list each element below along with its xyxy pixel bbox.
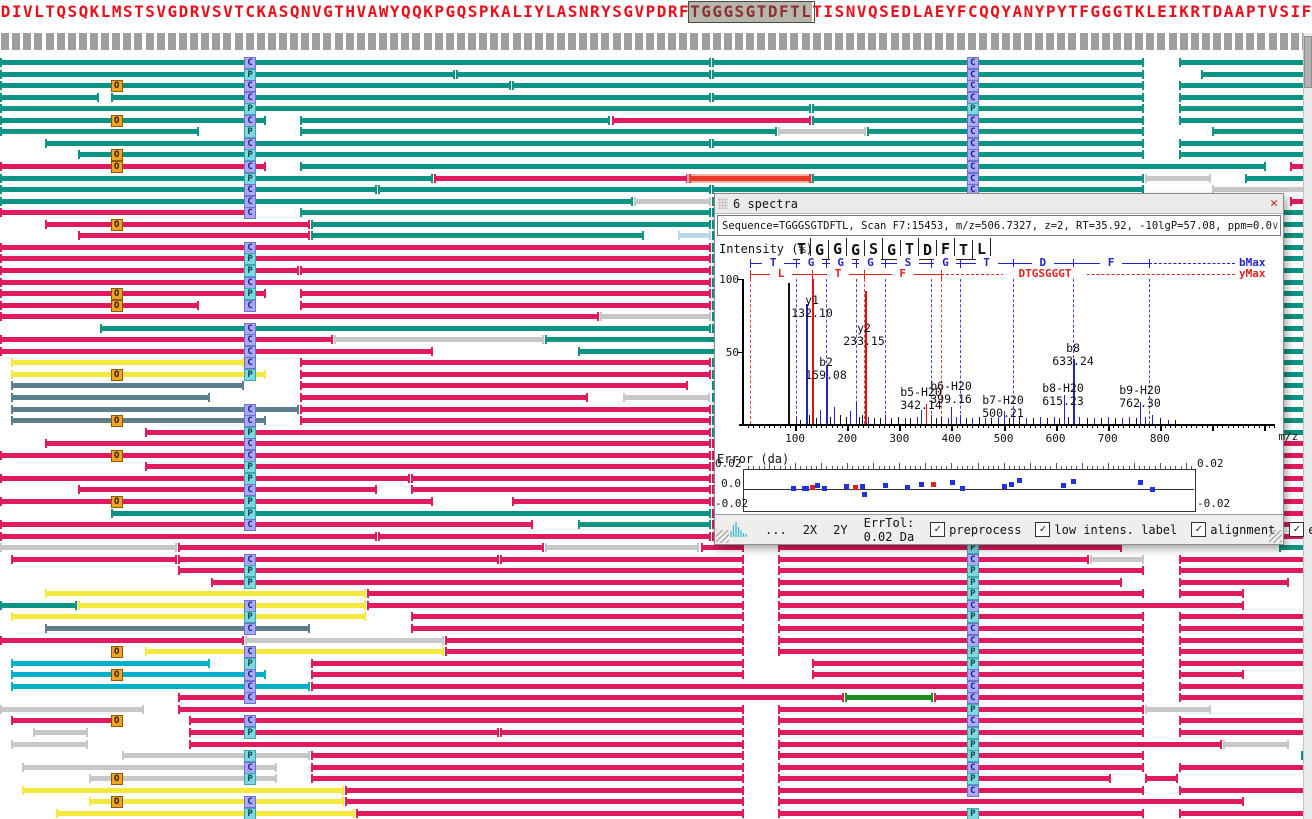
modification-badge[interactable]: P: [967, 658, 979, 670]
peptide-bar[interactable]: [0, 280, 711, 285]
peptide-bar[interactable]: [0, 349, 433, 354]
peptide-bar[interactable]: [0, 638, 244, 643]
peptide-bar[interactable]: [78, 233, 311, 238]
peptide-bar[interactable]: [11, 383, 244, 388]
peptide-bar[interactable]: [11, 372, 266, 377]
peptide-bar[interactable]: [300, 407, 710, 412]
peptide-bar[interactable]: [778, 638, 1144, 643]
peptide-bar[interactable]: [1179, 580, 1289, 585]
peptide-bar[interactable]: [845, 695, 933, 700]
modification-badge[interactable]: P: [244, 103, 256, 115]
modification-badge[interactable]: P: [244, 126, 256, 138]
peptide-bar[interactable]: [0, 60, 711, 65]
modification-badge[interactable]: C: [244, 346, 256, 358]
peptide-bar[interactable]: [778, 742, 1222, 747]
peptide-bar[interactable]: [189, 730, 499, 735]
modification-badge[interactable]: C: [244, 415, 256, 427]
peptide-bar[interactable]: [712, 95, 1145, 100]
peptide-bar[interactable]: [300, 372, 710, 377]
peptide-bar[interactable]: [11, 395, 210, 400]
modification-badge[interactable]: P: [967, 704, 979, 716]
peptide-bar[interactable]: [778, 557, 1088, 562]
peptide-bar[interactable]: [411, 614, 744, 619]
modification-badge[interactable]: C: [967, 138, 979, 150]
peptide-bar[interactable]: [300, 210, 710, 215]
modification-badge[interactable]: C: [967, 600, 979, 612]
drag-grip-icon[interactable]: [718, 198, 728, 209]
peptide-bar[interactable]: [1179, 568, 1311, 573]
peptide-bar[interactable]: [100, 326, 711, 331]
peptide-bar[interactable]: [1090, 557, 1145, 562]
modification-badge[interactable]: P: [967, 611, 979, 623]
modification-badge[interactable]: C: [244, 669, 256, 681]
peptide-bar[interactable]: [778, 753, 1144, 758]
modification-badge[interactable]: O: [111, 80, 123, 92]
modification-badge[interactable]: C: [244, 715, 256, 727]
peptide-bar[interactable]: [689, 176, 810, 181]
peptide-bar[interactable]: [1245, 176, 1311, 181]
peptide-bar[interactable]: [0, 199, 633, 204]
modification-badge[interactable]: C: [244, 438, 256, 450]
peptide-bar[interactable]: [634, 199, 711, 204]
peptide-bar[interactable]: [0, 176, 433, 181]
peptide-bar[interactable]: [334, 337, 544, 342]
peptide-bar[interactable]: [0, 303, 199, 308]
modification-badge[interactable]: C: [967, 69, 979, 81]
modification-badge[interactable]: P: [244, 427, 256, 439]
peptide-bar[interactable]: [78, 487, 377, 492]
peptide-bar[interactable]: [33, 730, 88, 735]
modification-badge[interactable]: O: [111, 715, 123, 727]
peptide-bar[interactable]: [245, 638, 444, 643]
peptide-bar[interactable]: [178, 557, 499, 562]
modification-badge[interactable]: P: [244, 69, 256, 81]
peptide-bar[interactable]: [211, 580, 744, 585]
peptide-bar[interactable]: [345, 788, 744, 793]
peptide-bar[interactable]: [11, 360, 244, 365]
peptide-bar[interactable]: [1145, 707, 1211, 712]
peptide-bar[interactable]: [500, 557, 744, 562]
peptide-bar[interactable]: [300, 418, 710, 423]
modification-badge[interactable]: C: [244, 357, 256, 369]
peptide-bar[interactable]: [0, 72, 455, 77]
modification-badge[interactable]: O: [111, 115, 123, 127]
modification-badge[interactable]: C: [244, 57, 256, 69]
close-icon[interactable]: ✕: [1270, 196, 1278, 211]
peptide-bar[interactable]: [545, 545, 700, 550]
peptide-bar[interactable]: [0, 603, 77, 608]
peptide-bar[interactable]: [778, 580, 1122, 585]
peptide-bar[interactable]: [78, 603, 366, 608]
peptide-bar[interactable]: [0, 707, 144, 712]
peptide-bar[interactable]: [356, 811, 744, 816]
zoom-y-button[interactable]: 2Y: [833, 523, 847, 537]
peptide-bar[interactable]: [778, 776, 1111, 781]
peptide-bar[interactable]: [1179, 718, 1311, 723]
modification-badge[interactable]: C: [244, 92, 256, 104]
peptide-bar[interactable]: [178, 545, 544, 550]
peptide-bar[interactable]: [11, 557, 177, 562]
peptide-bar[interactable]: [778, 707, 1144, 712]
modification-badge[interactable]: P: [244, 461, 256, 473]
modification-badge[interactable]: C: [244, 450, 256, 462]
checkbox-icon[interactable]: ✓: [1289, 522, 1304, 537]
modification-badge[interactable]: O: [111, 161, 123, 173]
peptide-bar[interactable]: [778, 788, 1144, 793]
peptide-bar[interactable]: [11, 742, 88, 747]
peptide-bar[interactable]: [45, 222, 311, 227]
modification-badge[interactable]: C: [244, 80, 256, 92]
peptide-bar[interactable]: [300, 303, 710, 308]
peptide-bar[interactable]: [1145, 176, 1211, 181]
modification-badge[interactable]: P: [244, 750, 256, 762]
scrollbar-thumb[interactable]: [1304, 36, 1312, 88]
peptide-bar[interactable]: [22, 788, 343, 793]
zoom-x-button[interactable]: 2X: [803, 523, 817, 537]
modification-badge[interactable]: C: [967, 149, 979, 161]
modification-badge[interactable]: C: [967, 715, 979, 727]
modification-badge[interactable]: P: [967, 739, 979, 751]
peptide-bar[interactable]: [778, 545, 1122, 550]
modification-badge[interactable]: O: [111, 369, 123, 381]
modification-badge[interactable]: C: [967, 554, 979, 566]
peptide-bar[interactable]: [678, 233, 710, 238]
peptide-bar[interactable]: [411, 626, 744, 631]
peptide-bar[interactable]: [300, 164, 1266, 169]
peptide-bar[interactable]: [0, 337, 333, 342]
peptide-bar[interactable]: [11, 672, 266, 677]
modification-badge[interactable]: C: [244, 600, 256, 612]
resize-grip-icon[interactable]: [716, 530, 729, 543]
modification-badge[interactable]: C: [244, 184, 256, 196]
peptide-bar[interactable]: [11, 684, 310, 689]
modification-badge[interactable]: P: [967, 646, 979, 658]
peptide-bar[interactable]: [778, 614, 1144, 619]
peptide-bar[interactable]: [300, 360, 710, 365]
peptide-bar[interactable]: [600, 314, 710, 319]
peptide-bar[interactable]: [1212, 187, 1311, 192]
toolbar-checkbox-alignment[interactable]: ✓alignment: [1191, 522, 1275, 537]
modification-badge[interactable]: P: [967, 103, 979, 115]
modification-badge[interactable]: C: [244, 115, 256, 127]
peptide-bar[interactable]: [1179, 141, 1311, 146]
peptide-bar[interactable]: [367, 591, 744, 596]
peptide-bar[interactable]: [867, 129, 1144, 134]
modification-badge[interactable]: C: [244, 242, 256, 254]
modification-badge[interactable]: P: [244, 773, 256, 785]
modification-badge[interactable]: P: [244, 658, 256, 670]
peptide-bar[interactable]: [1179, 661, 1311, 666]
peptide-bar[interactable]: [578, 522, 710, 527]
peptide-bar[interactable]: [1179, 557, 1311, 562]
peptide-bar[interactable]: [189, 742, 744, 747]
peptide-bar[interactable]: [712, 72, 1145, 77]
peptide-bar[interactable]: [300, 383, 688, 388]
peptide-bar[interactable]: [1179, 638, 1311, 643]
peptide-bar[interactable]: [0, 187, 377, 192]
peptide-bar[interactable]: [45, 441, 711, 446]
modification-badge[interactable]: C: [244, 300, 256, 312]
peptide-bar[interactable]: [0, 164, 266, 169]
modification-badge[interactable]: P: [244, 149, 256, 161]
modification-badge[interactable]: O: [111, 288, 123, 300]
peptide-bar[interactable]: [178, 568, 744, 573]
modification-badge[interactable]: C: [967, 57, 979, 69]
peptide-bar[interactable]: [311, 753, 744, 758]
peptide-bar[interactable]: [11, 418, 266, 423]
modification-badge[interactable]: C: [244, 207, 256, 219]
peptide-bar[interactable]: [311, 222, 710, 227]
modification-badge[interactable]: C: [967, 692, 979, 704]
peptide-bar[interactable]: [378, 534, 711, 539]
peptide-bar[interactable]: [512, 83, 1145, 88]
modification-badge[interactable]: O: [111, 149, 123, 161]
peptide-bar[interactable]: [178, 707, 744, 712]
modification-badge[interactable]: C: [244, 277, 256, 289]
peptide-bar[interactable]: [623, 395, 711, 400]
toolbar-checkbox-preprocess[interactable]: ✓preprocess: [930, 522, 1021, 537]
modification-badge[interactable]: C: [967, 681, 979, 693]
peptide-bar[interactable]: [1179, 672, 1245, 677]
peptide-bar[interactable]: [111, 511, 710, 516]
peptide-bar[interactable]: [456, 72, 711, 77]
modification-badge[interactable]: C: [244, 762, 256, 774]
modification-badge[interactable]: C: [967, 623, 979, 635]
modification-badge[interactable]: P: [244, 265, 256, 277]
modification-badge[interactable]: P: [244, 369, 256, 381]
peptide-bar[interactable]: [778, 626, 1144, 631]
popup-title-bar[interactable]: 6 spectra ✕: [715, 194, 1283, 214]
peptide-bar[interactable]: [778, 603, 1244, 608]
toolbar-checkbox-error[interactable]: ✓error: [1289, 522, 1312, 537]
peptide-bar[interactable]: [367, 603, 744, 608]
peptide-bar[interactable]: [122, 753, 310, 758]
peptide-bar[interactable]: [1179, 788, 1311, 793]
peptide-bar[interactable]: [778, 568, 1144, 573]
peptide-bar[interactable]: [345, 799, 744, 804]
modification-badge[interactable]: P: [967, 750, 979, 762]
peptide-bar[interactable]: [411, 487, 710, 492]
peptide-bar[interactable]: [45, 626, 311, 631]
peptide-bar[interactable]: [300, 118, 610, 123]
peptide-bar[interactable]: [0, 106, 811, 111]
peptide-bar[interactable]: [311, 661, 744, 666]
peptide-bar[interactable]: [22, 765, 277, 770]
modification-badge[interactable]: C: [244, 692, 256, 704]
modification-badge[interactable]: C: [967, 762, 979, 774]
peptide-bar[interactable]: [778, 811, 1144, 816]
peptide-bar[interactable]: [11, 661, 210, 666]
modification-badge[interactable]: C: [967, 126, 979, 138]
peptide-bar[interactable]: [300, 268, 710, 273]
peptide-bar[interactable]: [612, 118, 811, 123]
peptide-bar[interactable]: [1212, 129, 1311, 134]
modification-badge[interactable]: C: [967, 173, 979, 185]
peptide-bar[interactable]: [311, 776, 744, 781]
modification-badge[interactable]: P: [244, 577, 256, 589]
modification-badge[interactable]: P: [967, 588, 979, 600]
peptide-bar[interactable]: [78, 152, 1144, 157]
peptide-bar[interactable]: [1179, 591, 1245, 596]
peptide-bar[interactable]: [0, 476, 410, 481]
checkbox-icon[interactable]: ✓: [1035, 522, 1050, 537]
peptide-bar[interactable]: [778, 718, 1144, 723]
modification-badge[interactable]: P: [244, 173, 256, 185]
modification-badge[interactable]: P: [967, 577, 979, 589]
peptide-bar[interactable]: [0, 499, 433, 504]
modification-badge[interactable]: O: [111, 646, 123, 658]
peptide-bar[interactable]: [311, 233, 644, 238]
peptide-bar[interactable]: [778, 591, 1144, 596]
spectrum-view-icon[interactable]: [729, 521, 749, 538]
peptide-bar[interactable]: [56, 811, 355, 816]
peptide-bar[interactable]: [0, 118, 266, 123]
modification-badge[interactable]: C: [967, 115, 979, 127]
peptide-bar[interactable]: [89, 799, 344, 804]
modification-badge[interactable]: C: [244, 681, 256, 693]
modification-badge[interactable]: P: [244, 253, 256, 265]
more-options-button[interactable]: ...: [765, 523, 787, 537]
modification-badge[interactable]: P: [244, 611, 256, 623]
peptide-bar[interactable]: [701, 545, 745, 550]
modification-badge[interactable]: P: [244, 508, 256, 520]
peptide-bar[interactable]: [934, 695, 1144, 700]
modification-badge[interactable]: P: [244, 565, 256, 577]
modification-badge[interactable]: C: [967, 785, 979, 797]
modification-badge[interactable]: O: [111, 300, 123, 312]
modification-badge[interactable]: P: [244, 808, 256, 819]
modification-badge[interactable]: C: [244, 404, 256, 416]
modification-badge[interactable]: O: [111, 496, 123, 508]
peptide-bar[interactable]: [178, 695, 844, 700]
peptide-bar[interactable]: [712, 141, 1145, 146]
modification-badge[interactable]: P: [967, 727, 979, 739]
modification-badge[interactable]: P: [244, 727, 256, 739]
modification-badge[interactable]: O: [111, 415, 123, 427]
peptide-bar[interactable]: [11, 718, 121, 723]
peptide-bar[interactable]: [145, 649, 444, 654]
peptide-bar[interactable]: [434, 176, 689, 181]
peptide-bar[interactable]: [0, 522, 533, 527]
peptide-bar[interactable]: [1201, 72, 1311, 77]
peptide-bar[interactable]: [0, 314, 599, 319]
peptide-bar[interactable]: [778, 730, 1144, 735]
peptide-bar[interactable]: [1179, 811, 1311, 816]
peptide-bar[interactable]: [778, 799, 1244, 804]
peptide-bar[interactable]: [1145, 776, 1177, 781]
peptide-bar[interactable]: [445, 649, 744, 654]
modification-badge[interactable]: C: [967, 669, 979, 681]
peptide-bar[interactable]: [1179, 152, 1311, 157]
peptide-bar[interactable]: [0, 210, 255, 215]
modification-badge[interactable]: O: [111, 219, 123, 231]
peptide-bar[interactable]: [1179, 106, 1311, 111]
modification-badge[interactable]: P: [967, 773, 979, 785]
peptide-bar[interactable]: [145, 430, 711, 435]
peptide-bar[interactable]: [1179, 60, 1311, 65]
peptide-bar[interactable]: [311, 672, 744, 677]
peptide-bar[interactable]: [45, 591, 366, 596]
modification-badge[interactable]: O: [111, 773, 123, 785]
modification-badge[interactable]: C: [244, 138, 256, 150]
modification-badge[interactable]: O: [111, 450, 123, 462]
peptide-bar[interactable]: [1179, 118, 1311, 123]
modification-badge[interactable]: C: [967, 635, 979, 647]
peptide-bar[interactable]: [189, 718, 744, 723]
modification-badge[interactable]: P: [967, 565, 979, 577]
peptide-bar[interactable]: [45, 141, 711, 146]
modification-badge[interactable]: P: [967, 808, 979, 819]
checkbox-icon[interactable]: ✓: [1191, 522, 1206, 537]
peptide-bar[interactable]: [1179, 695, 1311, 700]
resize-grip-icon[interactable]: [1269, 530, 1282, 543]
peptide-bar[interactable]: [300, 395, 588, 400]
spectrum-selector-dropdown[interactable]: Sequence=TGGGSGTDFTL, Scan F7:15453, m/z…: [717, 215, 1281, 236]
peptide-bar[interactable]: [111, 95, 710, 100]
peptide-bar[interactable]: [0, 245, 711, 250]
modification-badge[interactable]: C: [244, 161, 256, 173]
modification-badge[interactable]: C: [244, 554, 256, 566]
peptide-bar[interactable]: [411, 476, 710, 481]
peptide-bar[interactable]: [1179, 730, 1311, 735]
modification-badge[interactable]: P: [244, 288, 256, 300]
modification-badge[interactable]: C: [244, 323, 256, 335]
modification-badge[interactable]: C: [244, 334, 256, 346]
modification-badge[interactable]: O: [111, 669, 123, 681]
peptide-bar[interactable]: [1179, 684, 1311, 689]
peptide-bar[interactable]: [311, 684, 1144, 689]
peptide-bar[interactable]: [1179, 83, 1311, 88]
modification-badge[interactable]: C: [244, 484, 256, 496]
peptide-bar[interactable]: [512, 499, 711, 504]
peptide-bar[interactable]: [0, 545, 177, 550]
modification-badge[interactable]: C: [244, 519, 256, 531]
peptide-bar[interactable]: [1179, 626, 1311, 631]
peptide-bar[interactable]: [712, 60, 1145, 65]
peptide-bar[interactable]: [1223, 742, 1289, 747]
peptide-bar[interactable]: [300, 291, 710, 296]
peptide-bar[interactable]: [145, 464, 711, 469]
peptide-bar[interactable]: [11, 614, 366, 619]
peptide-bar[interactable]: [300, 129, 777, 134]
peptide-bar[interactable]: [0, 256, 711, 261]
peptide-bar[interactable]: [778, 129, 866, 134]
peptide-bar[interactable]: [500, 730, 744, 735]
vertical-scrollbar[interactable]: [1303, 33, 1312, 819]
toolbar-checkbox-low-intens-label[interactable]: ✓low intens. label: [1035, 522, 1177, 537]
peptide-bar[interactable]: [1179, 95, 1311, 100]
modification-badge[interactable]: P: [244, 496, 256, 508]
peptide-bar[interactable]: [712, 187, 1145, 192]
modification-badge[interactable]: C: [244, 623, 256, 635]
modification-badge[interactable]: C: [967, 80, 979, 92]
modification-badge[interactable]: C: [967, 161, 979, 173]
peptide-bar[interactable]: [378, 187, 711, 192]
modification-badge[interactable]: C: [244, 646, 256, 658]
peptide-bar[interactable]: [0, 453, 711, 458]
modification-badge[interactable]: P: [244, 473, 256, 485]
peptide-bar[interactable]: [0, 95, 99, 100]
checkbox-icon[interactable]: ✓: [930, 522, 945, 537]
peptide-bar[interactable]: [1179, 614, 1311, 619]
peptide-bar[interactable]: [445, 638, 744, 643]
modification-badge[interactable]: C: [967, 92, 979, 104]
peptide-bar[interactable]: [0, 291, 266, 296]
peptide-bar[interactable]: [0, 129, 199, 134]
modification-badge[interactable]: O: [111, 796, 123, 808]
peptide-bar[interactable]: [778, 765, 1144, 770]
peptide-bar[interactable]: [311, 765, 744, 770]
